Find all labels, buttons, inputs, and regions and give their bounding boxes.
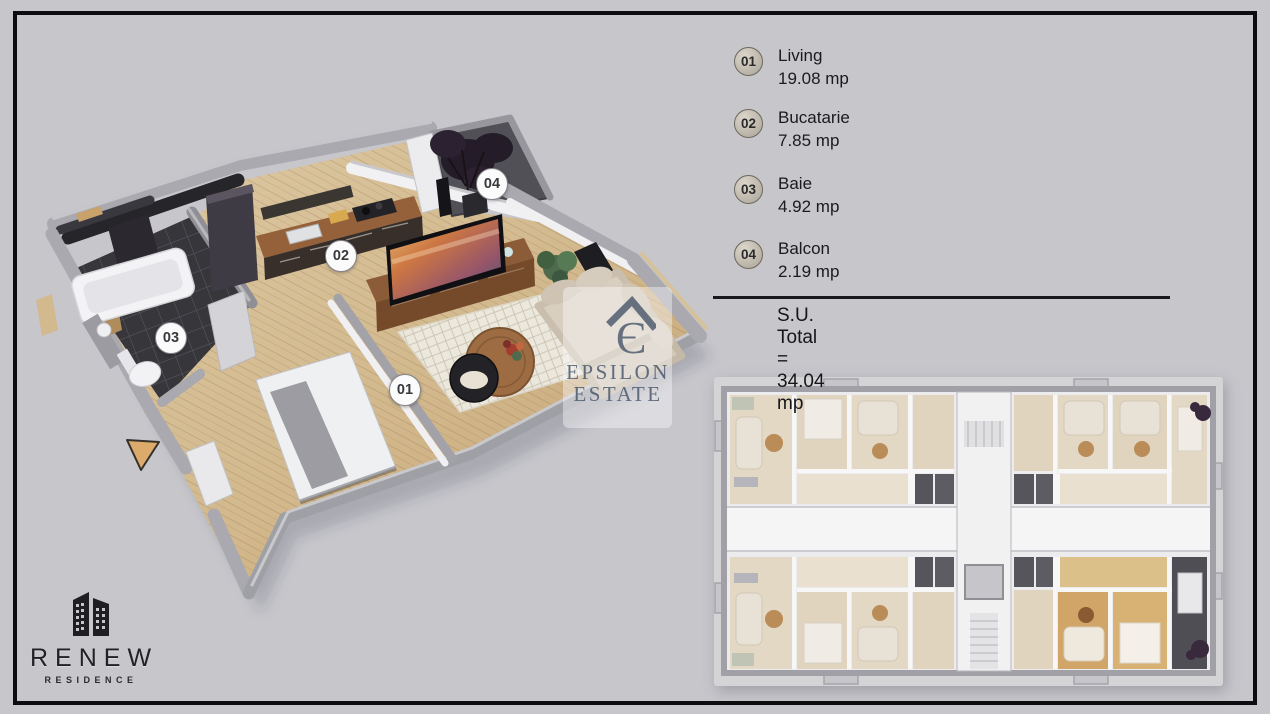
room-name: Living xyxy=(778,44,1064,67)
plan-badge-living: 01 xyxy=(389,374,421,406)
legend-badge-03: 03 xyxy=(734,175,763,204)
total-area: S.U. Total = 34.04 mp xyxy=(777,305,825,415)
room-area: 19.08 mp xyxy=(778,67,1064,90)
brand-name: RENEW xyxy=(30,644,152,673)
brand-subtitle: RESIDENCE xyxy=(30,675,152,685)
legend-divider xyxy=(713,296,1170,299)
unit-bottom-right-highlighted xyxy=(1014,557,1207,669)
room-area: 4.92 mp xyxy=(778,195,1064,218)
room-name: Bucatarie xyxy=(778,106,1064,129)
legend-badge-01: 01 xyxy=(734,47,763,76)
plan-badge-balcon: 04 xyxy=(476,168,508,200)
plan-badge-bucatarie: 02 xyxy=(325,240,357,272)
entrance-arrow-icon xyxy=(127,440,159,470)
room-name: Balcon xyxy=(778,237,1064,260)
svg-text:Є: Є xyxy=(616,312,646,357)
room-area: 2.19 mp xyxy=(778,260,1064,283)
unit-bottom-left xyxy=(730,557,954,669)
legend-row-bucatarie: 02 Bucatarie 7.85 mp xyxy=(734,106,1064,152)
building-floor-overview xyxy=(714,377,1223,686)
legend-badge-04: 04 xyxy=(734,240,763,269)
listing-canvas: { "legend": { "items": [ {"num": "01", "… xyxy=(0,0,1270,714)
watermark-line1: EPSILON xyxy=(508,361,728,383)
room-area: 7.85 mp xyxy=(778,129,1064,152)
legend-row-baie: 03 Baie 4.92 mp xyxy=(734,172,1064,218)
unit-top-right xyxy=(1014,395,1207,504)
legend-row-living: 01 Living 19.08 mp xyxy=(734,44,1064,90)
watermark-line2: ESTATE xyxy=(508,383,728,405)
legend-badge-02: 02 xyxy=(734,109,763,138)
renew-residence-logo: RENEW RESIDENCE xyxy=(30,590,152,685)
plan-badge-baie: 03 xyxy=(155,322,187,354)
elevator xyxy=(965,565,1003,599)
epsilon-estate-watermark: Є EPSILON ESTATE xyxy=(563,287,672,428)
legend-row-balcon: 04 Balcon 2.19 mp xyxy=(734,237,1064,283)
room-name: Baie xyxy=(778,172,1064,195)
buildings-icon xyxy=(65,590,117,640)
epsilon-roof-icon: Є xyxy=(606,295,656,357)
unit-top-left xyxy=(730,395,954,504)
